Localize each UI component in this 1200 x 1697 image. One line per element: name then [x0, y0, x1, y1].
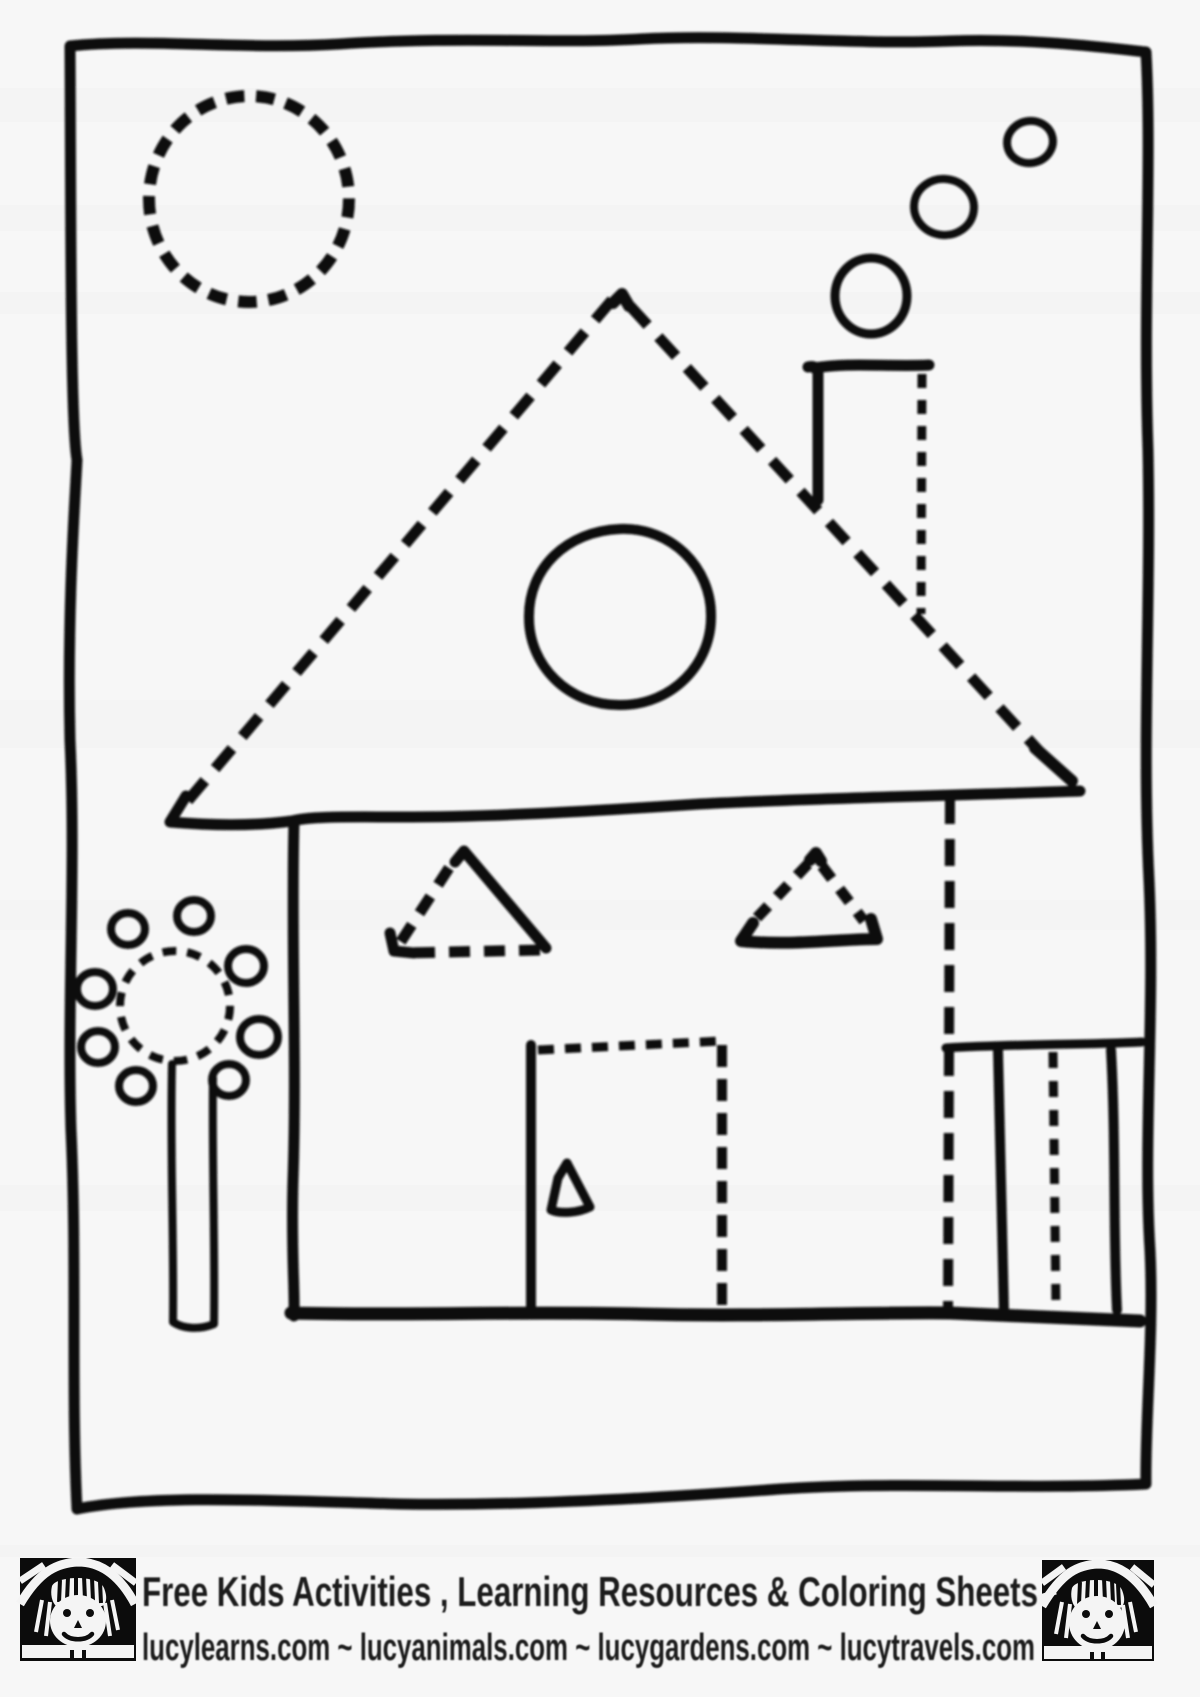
svg-text:lucylearns.com ~ lucyanimals.c: lucylearns.com ~ lucyanimals.com ~ lucyg… [142, 1627, 1035, 1669]
svg-text:Free Kids Activities , Learnin: Free Kids Activities , Learning Resource… [142, 1568, 1038, 1615]
